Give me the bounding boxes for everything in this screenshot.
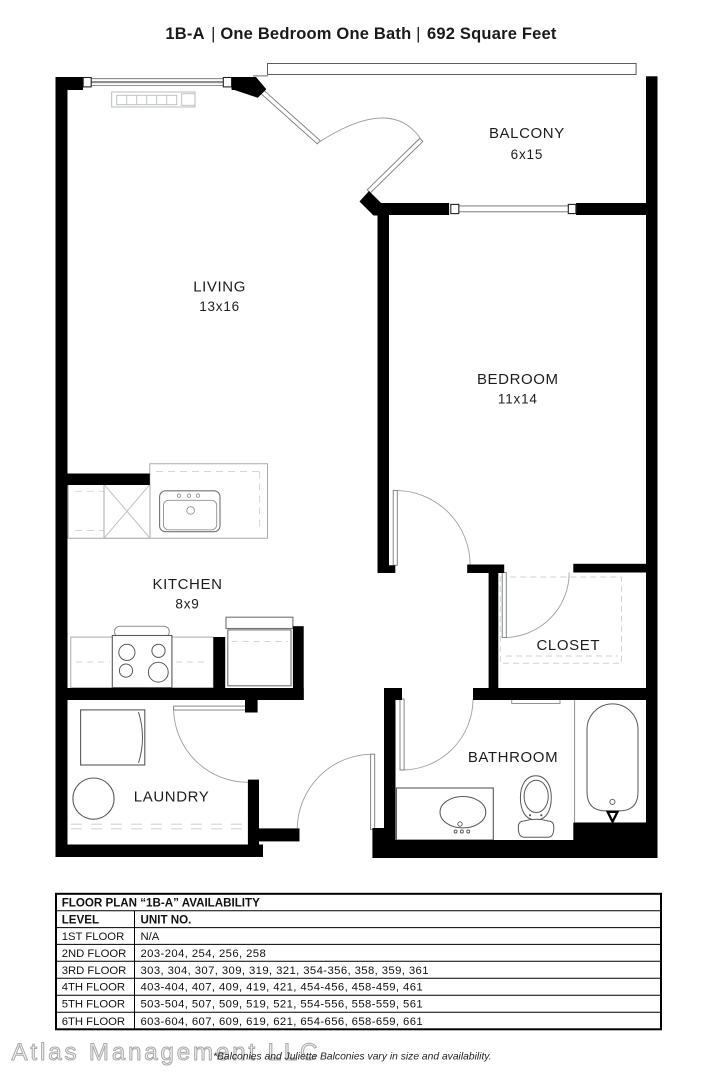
- svg-text:BALCONY: BALCONY: [489, 125, 565, 142]
- svg-text:LIVING: LIVING: [193, 278, 246, 295]
- svg-text:*Balconies and Juliette Balcon: *Balconies and Juliette Balconies vary i…: [213, 1052, 492, 1063]
- svg-text:403-404, 407, 409, 419, 421, 4: 403-404, 407, 409, 419, 421, 454-456, 45…: [141, 982, 424, 994]
- svg-text:1ST FLOOR: 1ST FLOOR: [62, 931, 125, 943]
- svg-text:8x9: 8x9: [175, 597, 199, 612]
- svg-text:303, 304, 307, 309, 319, 321,: 303, 304, 307, 309, 319, 321, 354-356, 3…: [141, 965, 429, 977]
- svg-text:N/A: N/A: [141, 931, 160, 943]
- svg-text:LAUNDRY: LAUNDRY: [134, 789, 210, 806]
- svg-text:503-504, 507, 509, 519, 521, 5: 503-504, 507, 509, 519, 521, 554-556, 55…: [141, 999, 424, 1011]
- svg-text:BATHROOM: BATHROOM: [468, 749, 558, 766]
- svg-text:UNIT NO.: UNIT NO.: [141, 913, 192, 926]
- svg-text:2ND FLOOR: 2ND FLOOR: [62, 948, 127, 960]
- svg-text:FLOOR PLAN “1B-A” AVAILABILITY: FLOOR PLAN “1B-A” AVAILABILITY: [62, 897, 260, 910]
- svg-text:13x16: 13x16: [199, 299, 240, 314]
- svg-text:CLOSET: CLOSET: [536, 637, 600, 654]
- svg-text:11x14: 11x14: [498, 392, 538, 407]
- svg-text:1B-A | One Bedroom One Bath |: 1B-A | One Bedroom One Bath | 692 Square…: [165, 25, 556, 43]
- svg-text:KITCHEN: KITCHEN: [152, 576, 222, 593]
- svg-text:603-604, 607, 609, 619, 621, 6: 603-604, 607, 609, 619, 621, 654-656, 65…: [141, 1016, 424, 1028]
- svg-text:5TH FLOOR: 5TH FLOOR: [62, 999, 125, 1011]
- svg-text:6TH FLOOR: 6TH FLOOR: [62, 1016, 125, 1028]
- svg-text:3RD FLOOR: 3RD FLOOR: [62, 965, 127, 977]
- svg-text:6x15: 6x15: [511, 147, 543, 162]
- svg-text:203-204, 254, 256, 258: 203-204, 254, 256, 258: [141, 948, 267, 960]
- svg-text:4TH FLOOR: 4TH FLOOR: [62, 982, 125, 994]
- svg-text:BEDROOM: BEDROOM: [477, 371, 559, 388]
- svg-text:LEVEL: LEVEL: [62, 913, 99, 926]
